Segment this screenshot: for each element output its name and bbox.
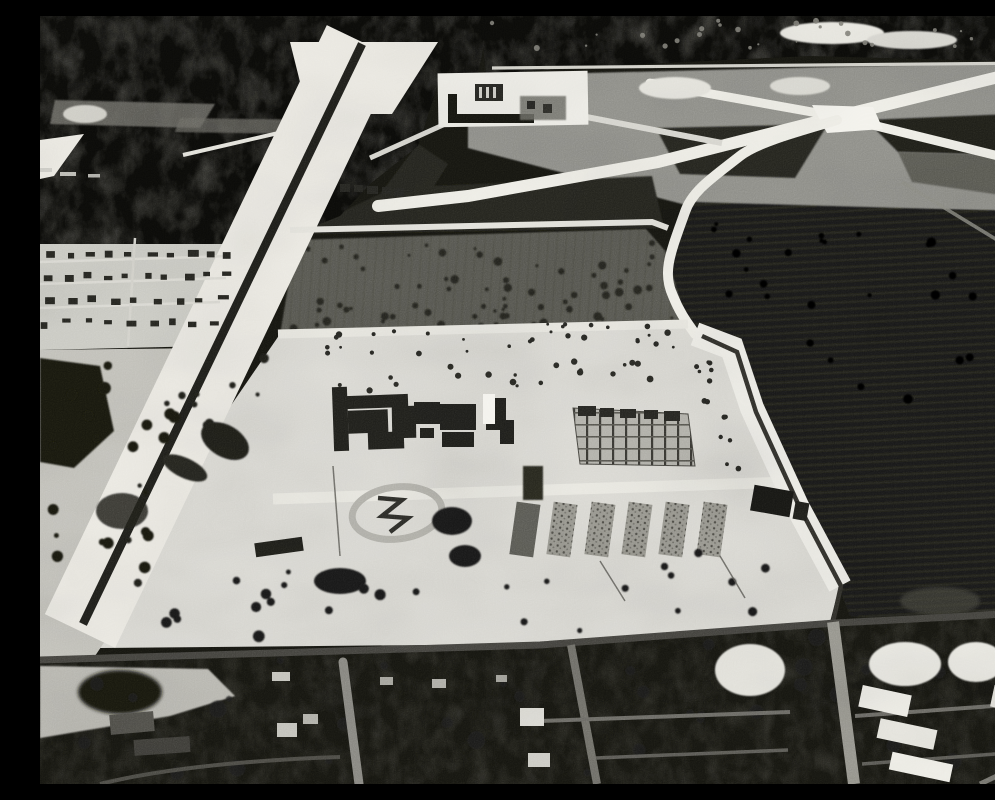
film-grain-overlay (40, 16, 995, 784)
aerial-photograph: High-contrast monochrome aerial view: a … (40, 16, 995, 784)
aerial-photo-canvas (40, 16, 995, 784)
